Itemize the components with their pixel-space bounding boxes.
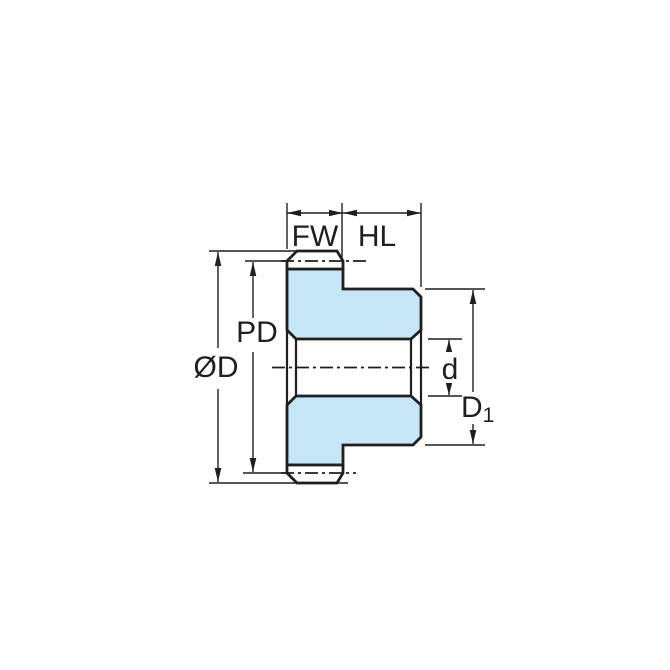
hl-right-arrow — [407, 210, 421, 217]
gear-body-lower-half — [287, 396, 421, 465]
gear-tooth-bottom — [287, 465, 343, 483]
gear-body-upper-half — [287, 269, 421, 339]
label-pitch-diameter: PD — [236, 316, 278, 349]
label-hub-length: HL — [358, 220, 396, 253]
pd-up-arrow — [250, 262, 257, 276]
od-down-arrow — [215, 468, 222, 482]
pd-down-arrow — [250, 458, 257, 472]
d1-up-arrow — [470, 290, 477, 304]
label-hub-diameter: D1 — [461, 391, 494, 427]
label-hub-diameter-main: D — [461, 391, 483, 424]
fw-right-arrow — [329, 210, 343, 217]
d1-down-arrow — [470, 430, 477, 444]
d-up-arrow — [446, 340, 452, 352]
label-outside-diameter: ØD — [194, 351, 239, 384]
hl-left-arrow — [343, 210, 357, 217]
gear-dimension-diagram: FW HL PD ØD d D1 — [0, 0, 670, 670]
fw-left-arrow — [287, 210, 301, 217]
diagram-canvas: FW HL PD ØD d D1 — [0, 0, 670, 670]
od-up-arrow — [215, 252, 222, 266]
label-bore-diameter: d — [442, 353, 459, 386]
label-hub-diameter-subscript: 1 — [483, 404, 495, 427]
gear-tooth-top — [287, 251, 343, 269]
label-face-width: FW — [292, 220, 339, 253]
